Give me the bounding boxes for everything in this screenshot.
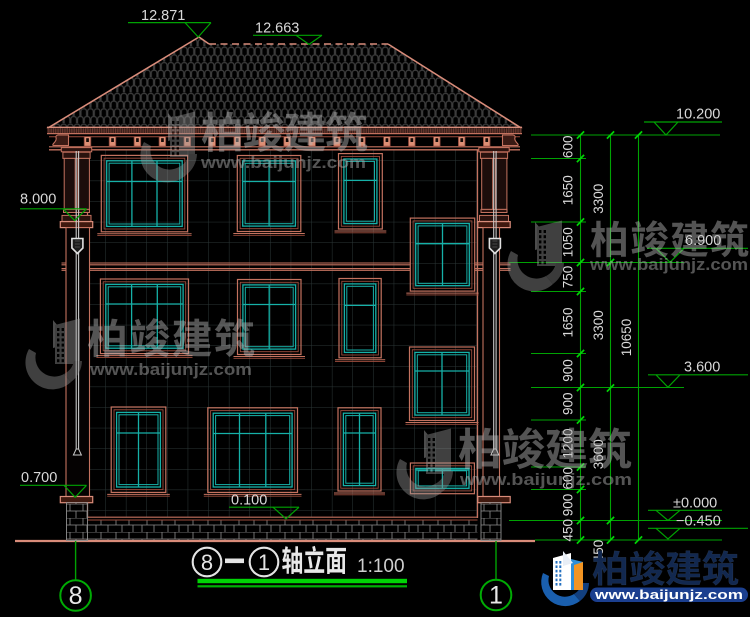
- svg-text:1: 1: [489, 582, 503, 610]
- svg-text:900: 900: [561, 494, 576, 517]
- svg-text:1:100: 1:100: [357, 556, 405, 577]
- svg-text:900: 900: [561, 392, 576, 415]
- svg-text:0.100: 0.100: [231, 493, 267, 509]
- svg-text:1650: 1650: [561, 175, 576, 205]
- svg-text:8: 8: [69, 582, 83, 610]
- svg-text:−0.450: −0.450: [676, 514, 721, 530]
- svg-text:1050: 1050: [561, 227, 576, 257]
- svg-text:12.663: 12.663: [255, 21, 299, 37]
- svg-text:900: 900: [561, 359, 576, 382]
- svg-text:www.baijunjz.com: www.baijunjz.com: [89, 361, 252, 379]
- svg-text:8: 8: [201, 550, 213, 575]
- svg-text:3.600: 3.600: [684, 360, 720, 376]
- svg-text:www.baijunjz.com: www.baijunjz.com: [589, 256, 748, 274]
- svg-text:www.baijunjz.com: www.baijunjz.com: [459, 471, 632, 489]
- svg-text:3300: 3300: [591, 310, 606, 340]
- svg-text:10.200: 10.200: [676, 107, 720, 123]
- svg-text:450: 450: [561, 519, 576, 542]
- svg-text:1: 1: [258, 550, 270, 575]
- svg-text:1650: 1650: [561, 307, 576, 337]
- svg-text:0.700: 0.700: [21, 470, 57, 486]
- svg-text:8.000: 8.000: [20, 192, 56, 208]
- svg-text:3300: 3300: [591, 184, 606, 214]
- svg-text:600: 600: [561, 136, 576, 159]
- svg-text:10650: 10650: [619, 319, 634, 357]
- svg-text:www.baijunjz.com: www.baijunjz.com: [200, 154, 366, 172]
- svg-text:www.baijunjz.com: www.baijunjz.com: [594, 588, 743, 602]
- svg-text:±0.000: ±0.000: [673, 496, 717, 512]
- svg-text:12.871: 12.871: [141, 8, 185, 24]
